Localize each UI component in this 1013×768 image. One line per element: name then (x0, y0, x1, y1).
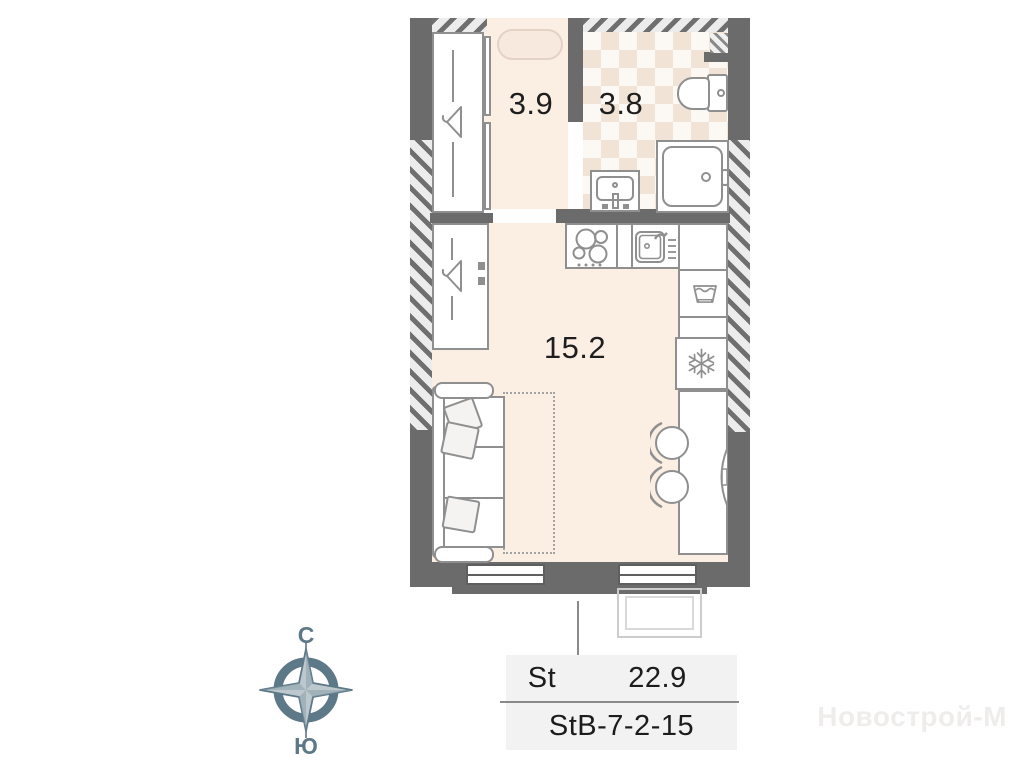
unit-type-label: St (528, 662, 556, 695)
table-divider-line (500, 701, 739, 703)
hanger-icon (438, 256, 466, 296)
window-left (466, 564, 545, 585)
top-wall-right (583, 18, 728, 32)
kitchen-sink-icon (633, 226, 678, 268)
floor-plan-page: 3.9 3.8 15.2 St 22.9 StB-7-2-15 С Ю Ново… (0, 0, 1013, 768)
left-wall-top (410, 18, 432, 140)
right-wall-hatched (728, 140, 750, 432)
bathroom-sink-tap (612, 193, 619, 209)
shower-drain (701, 172, 711, 182)
shower-tap (721, 169, 729, 186)
washing-machine-icon (691, 280, 719, 308)
compass-rose-icon (258, 642, 354, 738)
stove-icon (567, 226, 613, 268)
wardrobe-rod-bottom (452, 142, 454, 197)
balcony-inner-outline (625, 596, 694, 630)
top-wall-left (432, 18, 487, 32)
wardrobe-hinge-1 (478, 262, 485, 270)
shower-tray-inner (662, 146, 723, 207)
counter-divider-1 (616, 225, 618, 267)
right-wall-top (728, 18, 750, 140)
wardrobe-door-lower (484, 122, 491, 210)
chair-icon (650, 421, 694, 465)
toilet-bowl (677, 77, 710, 110)
hallway-area-label: 3.9 (509, 86, 554, 122)
vent-shaft (710, 33, 728, 53)
bathroom-sink-foot-right (623, 204, 629, 209)
chair-icon (650, 465, 694, 509)
compass-south-label: Ю (284, 733, 328, 760)
unit-total-area: 22.9 (628, 662, 686, 695)
sofa-pillow-3 (441, 495, 480, 533)
window-right (618, 564, 697, 585)
hanger-icon (438, 102, 466, 142)
unit-info-row-1: St 22.9 (506, 655, 737, 702)
wardrobe-door-upper (484, 36, 491, 116)
vent-stub-wall (704, 52, 730, 62)
wardrobe-hinge-2 (478, 277, 485, 285)
tv-icon (713, 446, 730, 508)
wardrobe-stub-wall (430, 213, 493, 223)
hallway-bathroom-wall (568, 18, 583, 122)
column-divider-2 (680, 316, 726, 318)
unit-info-row-2: StB-7-2-15 (506, 703, 737, 750)
bathroom-area-label: 3.8 (599, 86, 644, 122)
sofa-pillow-2 (440, 421, 480, 460)
bottom-wall (410, 562, 750, 587)
column-divider-4 (680, 390, 726, 392)
sofa-bed-extension (503, 392, 555, 554)
unit-code: StB-7-2-15 (549, 710, 694, 743)
bathroom-sink-drain (612, 182, 618, 188)
entrance-rug (497, 29, 563, 60)
sofa-armrest-top (434, 382, 494, 399)
sofa-armrest-bottom (434, 546, 494, 563)
living-room-area-label: 15.2 (544, 330, 606, 366)
toilet-tank-button (717, 89, 725, 97)
left-wall-hatched (410, 140, 432, 430)
column-divider-1 (680, 269, 726, 271)
bathroom-door-threshold (568, 122, 583, 209)
bathroom-sink-foot-left (602, 204, 608, 209)
wardrobe-rod-top (452, 50, 454, 102)
living-wardrobe-rod-bottom (451, 296, 453, 320)
snowflake-icon (686, 348, 717, 379)
watermark: Новострой-М (800, 701, 1007, 733)
